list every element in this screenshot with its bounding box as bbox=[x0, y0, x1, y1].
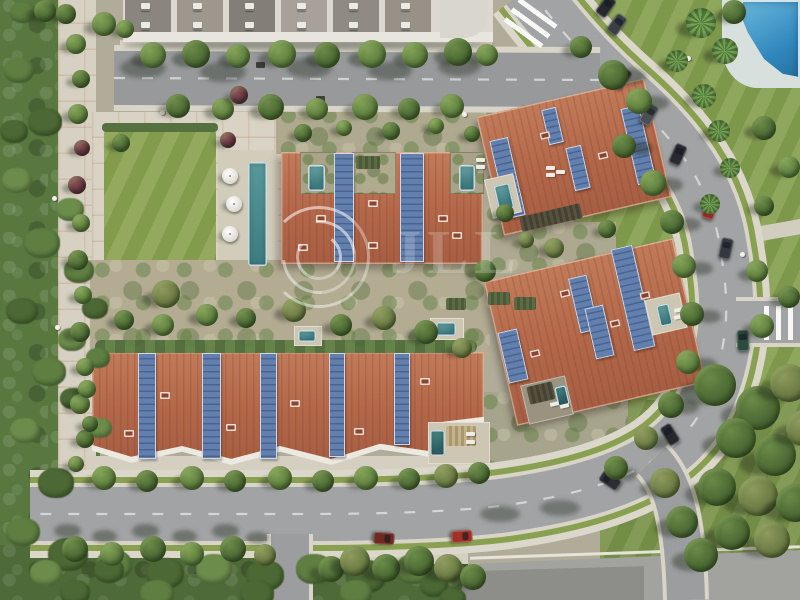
shrub bbox=[30, 560, 62, 586]
palm-tree bbox=[686, 8, 716, 38]
solar-panel-array bbox=[202, 353, 221, 459]
solar-panel-array bbox=[394, 353, 410, 445]
tree bbox=[182, 40, 210, 68]
tree-shadow-on-road bbox=[480, 506, 520, 522]
tree bbox=[236, 308, 256, 328]
car bbox=[451, 530, 473, 543]
tree bbox=[112, 134, 130, 152]
townhouse-chimney bbox=[245, 22, 254, 30]
tree bbox=[76, 358, 94, 376]
solar-panel-array bbox=[329, 353, 345, 457]
palm-tree bbox=[692, 84, 716, 108]
townhouse-chimney bbox=[349, 3, 358, 11]
tree bbox=[722, 0, 746, 24]
structures-layer bbox=[0, 0, 800, 600]
tree bbox=[70, 322, 90, 342]
shrub bbox=[6, 298, 38, 324]
tree bbox=[598, 60, 628, 90]
tree bbox=[598, 220, 616, 238]
tree bbox=[428, 118, 444, 134]
tree bbox=[660, 210, 684, 234]
tree bbox=[402, 42, 428, 68]
tree bbox=[68, 104, 88, 124]
tree bbox=[66, 34, 86, 54]
shrub bbox=[6, 518, 40, 546]
tree bbox=[398, 98, 420, 120]
tree bbox=[544, 238, 564, 258]
pergola bbox=[446, 298, 466, 310]
tree bbox=[382, 122, 400, 140]
tree bbox=[460, 564, 486, 590]
tree bbox=[474, 260, 496, 282]
tree bbox=[746, 260, 768, 282]
tree bbox=[752, 116, 776, 140]
shrub bbox=[240, 580, 274, 600]
tree bbox=[372, 306, 396, 330]
townhouse-chimney bbox=[297, 3, 306, 11]
tree bbox=[612, 134, 636, 158]
tree bbox=[166, 94, 190, 118]
shrub bbox=[60, 580, 90, 600]
chimney bbox=[124, 430, 134, 437]
tree bbox=[78, 380, 96, 398]
parasol-umbrella bbox=[226, 196, 242, 212]
aerial-photo-residential-complex: JLL bbox=[0, 0, 800, 600]
palm-tree bbox=[708, 120, 730, 142]
tree bbox=[496, 204, 514, 222]
tree bbox=[666, 506, 698, 538]
tree bbox=[694, 364, 736, 406]
chimney bbox=[316, 215, 326, 222]
shrub bbox=[38, 468, 74, 498]
car bbox=[668, 142, 688, 166]
townhouse-chimney bbox=[349, 22, 358, 30]
tree bbox=[684, 538, 718, 572]
chimney bbox=[298, 244, 308, 251]
tree bbox=[754, 522, 790, 558]
chimney bbox=[420, 378, 430, 385]
crosswalk bbox=[500, 0, 557, 52]
tree bbox=[34, 0, 56, 22]
townhouse-chimney bbox=[401, 3, 410, 11]
tree bbox=[464, 126, 480, 142]
swimming-pool bbox=[298, 330, 316, 342]
tree bbox=[72, 70, 90, 88]
tree bbox=[476, 44, 498, 66]
tree bbox=[140, 42, 166, 68]
tree bbox=[640, 170, 666, 196]
street-lamp bbox=[52, 196, 57, 201]
tree bbox=[152, 314, 174, 336]
solar-panel-array bbox=[400, 153, 424, 262]
chimney bbox=[368, 200, 378, 207]
tree bbox=[778, 156, 800, 178]
sun-lounger bbox=[556, 170, 565, 174]
tree bbox=[440, 94, 464, 118]
tree bbox=[196, 304, 218, 326]
parasol-umbrella bbox=[222, 226, 238, 242]
tree bbox=[74, 140, 90, 156]
shrub bbox=[2, 168, 32, 193]
townhouse-chimney bbox=[297, 22, 306, 30]
tree bbox=[136, 470, 158, 492]
parasol-umbrella bbox=[222, 168, 238, 184]
tree-shadow-on-road bbox=[540, 500, 580, 516]
shrub bbox=[28, 108, 62, 136]
swimming-pool bbox=[436, 322, 456, 336]
tree bbox=[116, 20, 134, 38]
street-lamp bbox=[740, 252, 745, 257]
tree bbox=[336, 120, 352, 136]
tree bbox=[398, 468, 420, 490]
tree bbox=[68, 456, 84, 472]
shrub bbox=[140, 580, 174, 600]
swimming-pool bbox=[248, 162, 267, 266]
swimming-pool bbox=[308, 165, 325, 191]
sun-lounger bbox=[476, 165, 485, 169]
tree bbox=[358, 40, 386, 68]
tree bbox=[672, 254, 696, 278]
tree bbox=[230, 86, 248, 104]
tree bbox=[330, 314, 352, 336]
chimney bbox=[368, 242, 378, 249]
chimney bbox=[354, 428, 364, 435]
tree bbox=[92, 466, 116, 490]
tree bbox=[354, 466, 378, 490]
tree bbox=[778, 286, 800, 308]
tree bbox=[434, 464, 458, 488]
tree bbox=[220, 132, 236, 148]
townhouse-chimney bbox=[401, 22, 410, 30]
sun-lounger bbox=[466, 432, 475, 436]
shrub bbox=[4, 58, 34, 83]
street-lamp bbox=[462, 112, 467, 117]
tree bbox=[444, 38, 472, 66]
sun-lounger bbox=[546, 166, 555, 170]
pergola bbox=[514, 297, 536, 310]
townhouse-wall-strip bbox=[123, 32, 493, 42]
townhouse-chimney bbox=[193, 3, 202, 11]
tree bbox=[180, 466, 204, 490]
tree bbox=[468, 462, 490, 484]
tree bbox=[294, 124, 312, 142]
tree bbox=[518, 232, 534, 248]
tree bbox=[100, 542, 124, 566]
tree bbox=[258, 94, 284, 120]
townhouse-chimney bbox=[141, 22, 150, 30]
palm-tree bbox=[700, 194, 720, 214]
tree bbox=[56, 4, 76, 24]
tree bbox=[152, 280, 180, 308]
tree bbox=[634, 426, 658, 450]
tree bbox=[716, 418, 756, 458]
shrub bbox=[0, 120, 28, 143]
tree bbox=[62, 536, 88, 562]
tree bbox=[140, 536, 166, 562]
shrub bbox=[24, 228, 60, 258]
car bbox=[373, 532, 395, 545]
tree bbox=[82, 416, 98, 432]
tree bbox=[306, 98, 328, 120]
solar-panel-array bbox=[260, 353, 277, 459]
street-lamp bbox=[55, 325, 60, 330]
swimming-pool bbox=[459, 165, 475, 191]
tree bbox=[352, 94, 378, 120]
car bbox=[718, 237, 734, 260]
tree bbox=[750, 314, 774, 338]
tree bbox=[570, 36, 592, 58]
tree bbox=[74, 286, 92, 304]
shrub bbox=[340, 580, 372, 600]
palm-tree bbox=[666, 50, 688, 72]
tree bbox=[754, 196, 774, 216]
tree bbox=[626, 88, 652, 114]
chimney bbox=[160, 392, 170, 399]
tree bbox=[770, 364, 800, 402]
tree bbox=[114, 310, 134, 330]
tree bbox=[314, 42, 340, 68]
shrub bbox=[440, 588, 466, 600]
townhouse-chimney bbox=[245, 3, 254, 11]
townhouse-chimney bbox=[141, 3, 150, 11]
tree bbox=[72, 214, 90, 232]
tree bbox=[268, 40, 296, 68]
tree bbox=[452, 338, 472, 358]
shrub bbox=[32, 358, 66, 386]
chimney bbox=[290, 400, 300, 407]
tree bbox=[312, 470, 334, 492]
palm-tree bbox=[720, 158, 740, 178]
tree bbox=[76, 430, 94, 448]
tree bbox=[676, 350, 700, 374]
tree bbox=[604, 456, 628, 480]
tree bbox=[414, 320, 438, 344]
tree bbox=[268, 466, 292, 490]
tree bbox=[282, 298, 306, 322]
sun-lounger bbox=[466, 440, 475, 444]
pergola bbox=[356, 156, 380, 169]
sun-lounger bbox=[476, 158, 485, 162]
sun-lounger bbox=[546, 173, 555, 177]
car bbox=[606, 12, 628, 36]
car bbox=[595, 0, 617, 19]
chimney bbox=[438, 215, 448, 222]
tree bbox=[650, 468, 680, 498]
palm-tree bbox=[712, 38, 738, 64]
chimney bbox=[226, 424, 236, 431]
solar-panel-array bbox=[334, 153, 354, 262]
tree bbox=[226, 44, 250, 68]
tree bbox=[254, 544, 276, 566]
tree-shadow bbox=[246, 532, 269, 544]
tree bbox=[220, 536, 246, 562]
tree bbox=[180, 542, 204, 566]
tree bbox=[68, 250, 88, 270]
tree bbox=[68, 176, 86, 194]
swimming-pool bbox=[430, 430, 445, 456]
tree bbox=[224, 470, 246, 492]
tree bbox=[680, 302, 704, 326]
townhouse-chimney bbox=[193, 22, 202, 30]
shrub bbox=[10, 418, 40, 443]
chimney bbox=[452, 232, 462, 239]
pergola bbox=[488, 292, 510, 305]
solar-panel-array bbox=[138, 353, 156, 459]
